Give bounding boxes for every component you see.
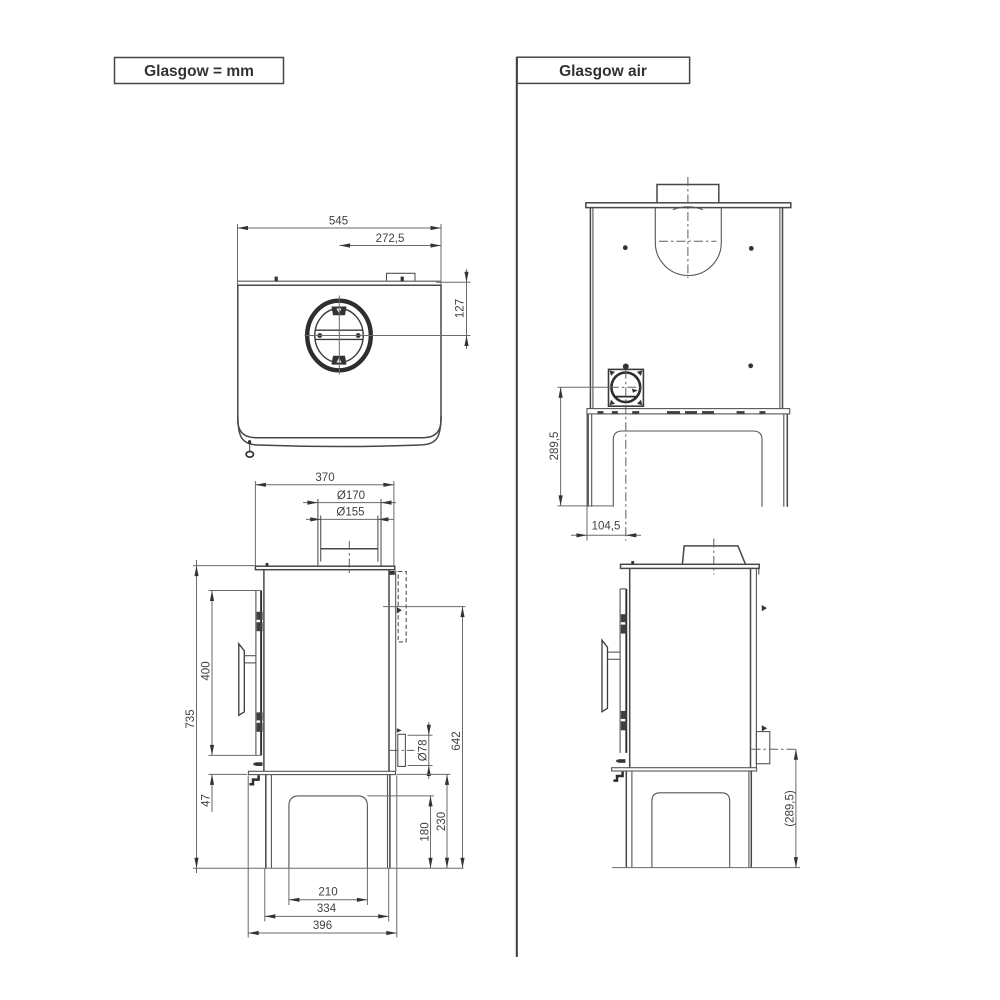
svg-text:Ø78: Ø78	[417, 740, 429, 762]
svg-text:47: 47	[201, 794, 213, 807]
svg-text:735: 735	[185, 709, 197, 728]
svg-text:400: 400	[201, 661, 213, 680]
svg-text:Glasgow air: Glasgow air	[559, 63, 647, 80]
svg-text:Ø170: Ø170	[337, 490, 365, 502]
svg-text:272,5: 272,5	[376, 233, 405, 245]
svg-text:104,5: 104,5	[592, 520, 621, 532]
svg-text:127: 127	[455, 299, 467, 318]
svg-text:545: 545	[329, 216, 348, 228]
svg-text:180: 180	[419, 822, 431, 841]
svg-text:(289,5): (289,5)	[784, 790, 796, 827]
svg-text:334: 334	[317, 903, 337, 915]
svg-text:Ø155: Ø155	[336, 507, 364, 519]
svg-text:642: 642	[451, 731, 463, 750]
svg-text:396: 396	[313, 920, 332, 932]
svg-text:210: 210	[318, 887, 337, 899]
svg-text:289,5: 289,5	[549, 432, 561, 461]
svg-text:370: 370	[315, 472, 334, 484]
svg-text:Glasgow = mm: Glasgow = mm	[144, 63, 254, 80]
svg-text:230: 230	[436, 812, 448, 831]
